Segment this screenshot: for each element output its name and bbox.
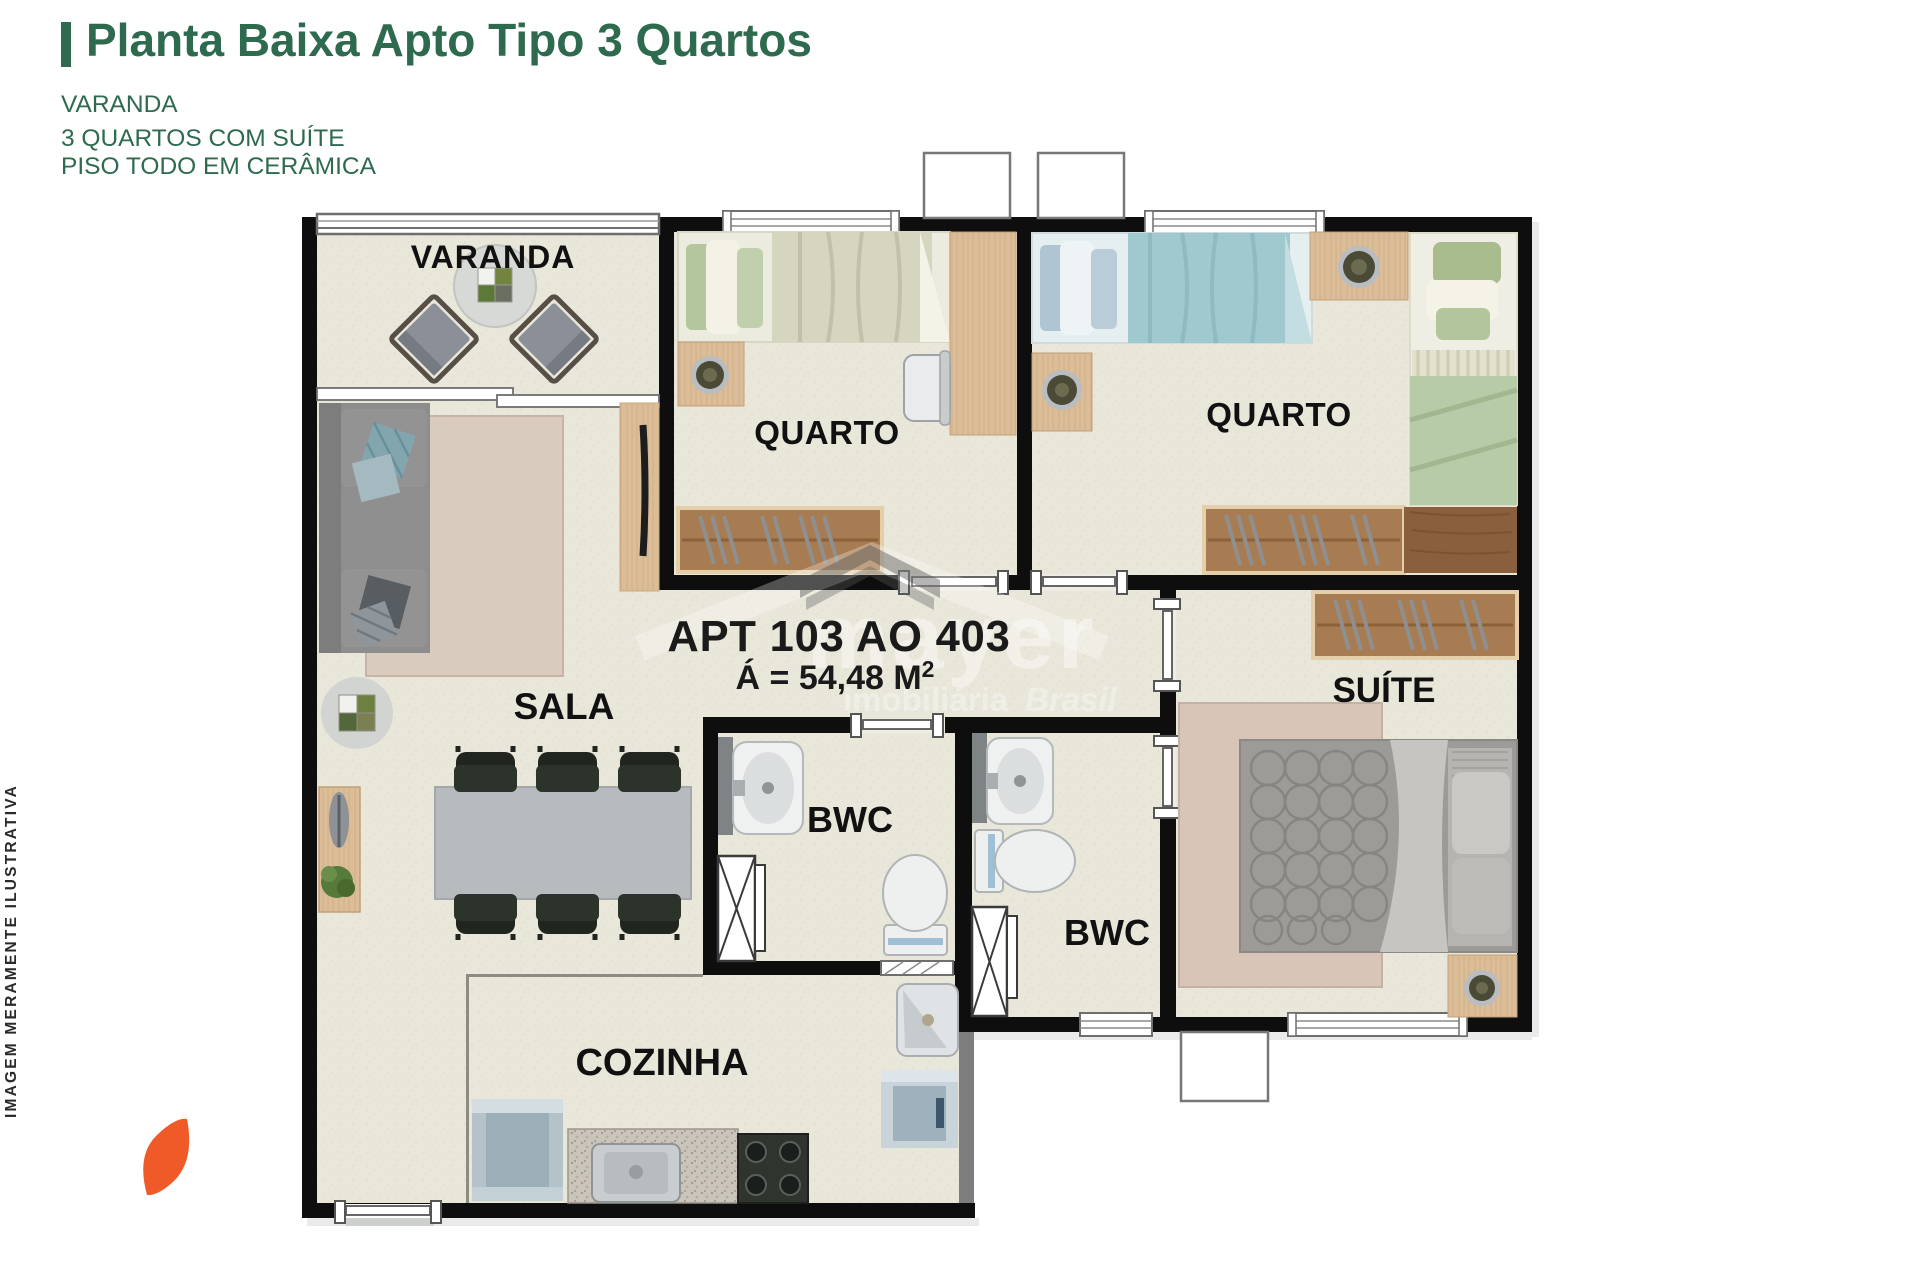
svg-text:BWC: BWC <box>807 799 893 840</box>
svg-text:Brasil: Brasil <box>1025 681 1118 718</box>
svg-text:SALA: SALA <box>514 686 615 727</box>
svg-text:VARANDA: VARANDA <box>411 239 576 275</box>
svg-text:PISO TODO EM CERÂMICA: PISO TODO EM CERÂMICA <box>61 153 377 180</box>
svg-text:QUARTO: QUARTO <box>1206 396 1351 433</box>
svg-text:3 QUARTOS COM SUÍTE: 3 QUARTOS COM SUÍTE <box>61 125 345 152</box>
svg-text:VARANDA: VARANDA <box>61 91 178 118</box>
svg-text:COZINHA: COZINHA <box>575 1042 748 1084</box>
svg-text:QUARTO: QUARTO <box>754 414 899 451</box>
svg-text:BWC: BWC <box>1064 912 1150 953</box>
svg-text:Á = 54,48 M2: Á = 54,48 M2 <box>736 656 935 697</box>
svg-text:Planta Baixa Apto Tipo 3 Quart: Planta Baixa Apto Tipo 3 Quartos <box>86 14 812 66</box>
svg-text:APT 103 AO 403: APT 103 AO 403 <box>667 613 1010 661</box>
svg-text:SUÍTE: SUÍTE <box>1332 670 1435 710</box>
svg-text:IMAGEM MERAMENTE ILUSTRATIVA: IMAGEM MERAMENTE ILUSTRATIVA <box>3 784 20 1118</box>
